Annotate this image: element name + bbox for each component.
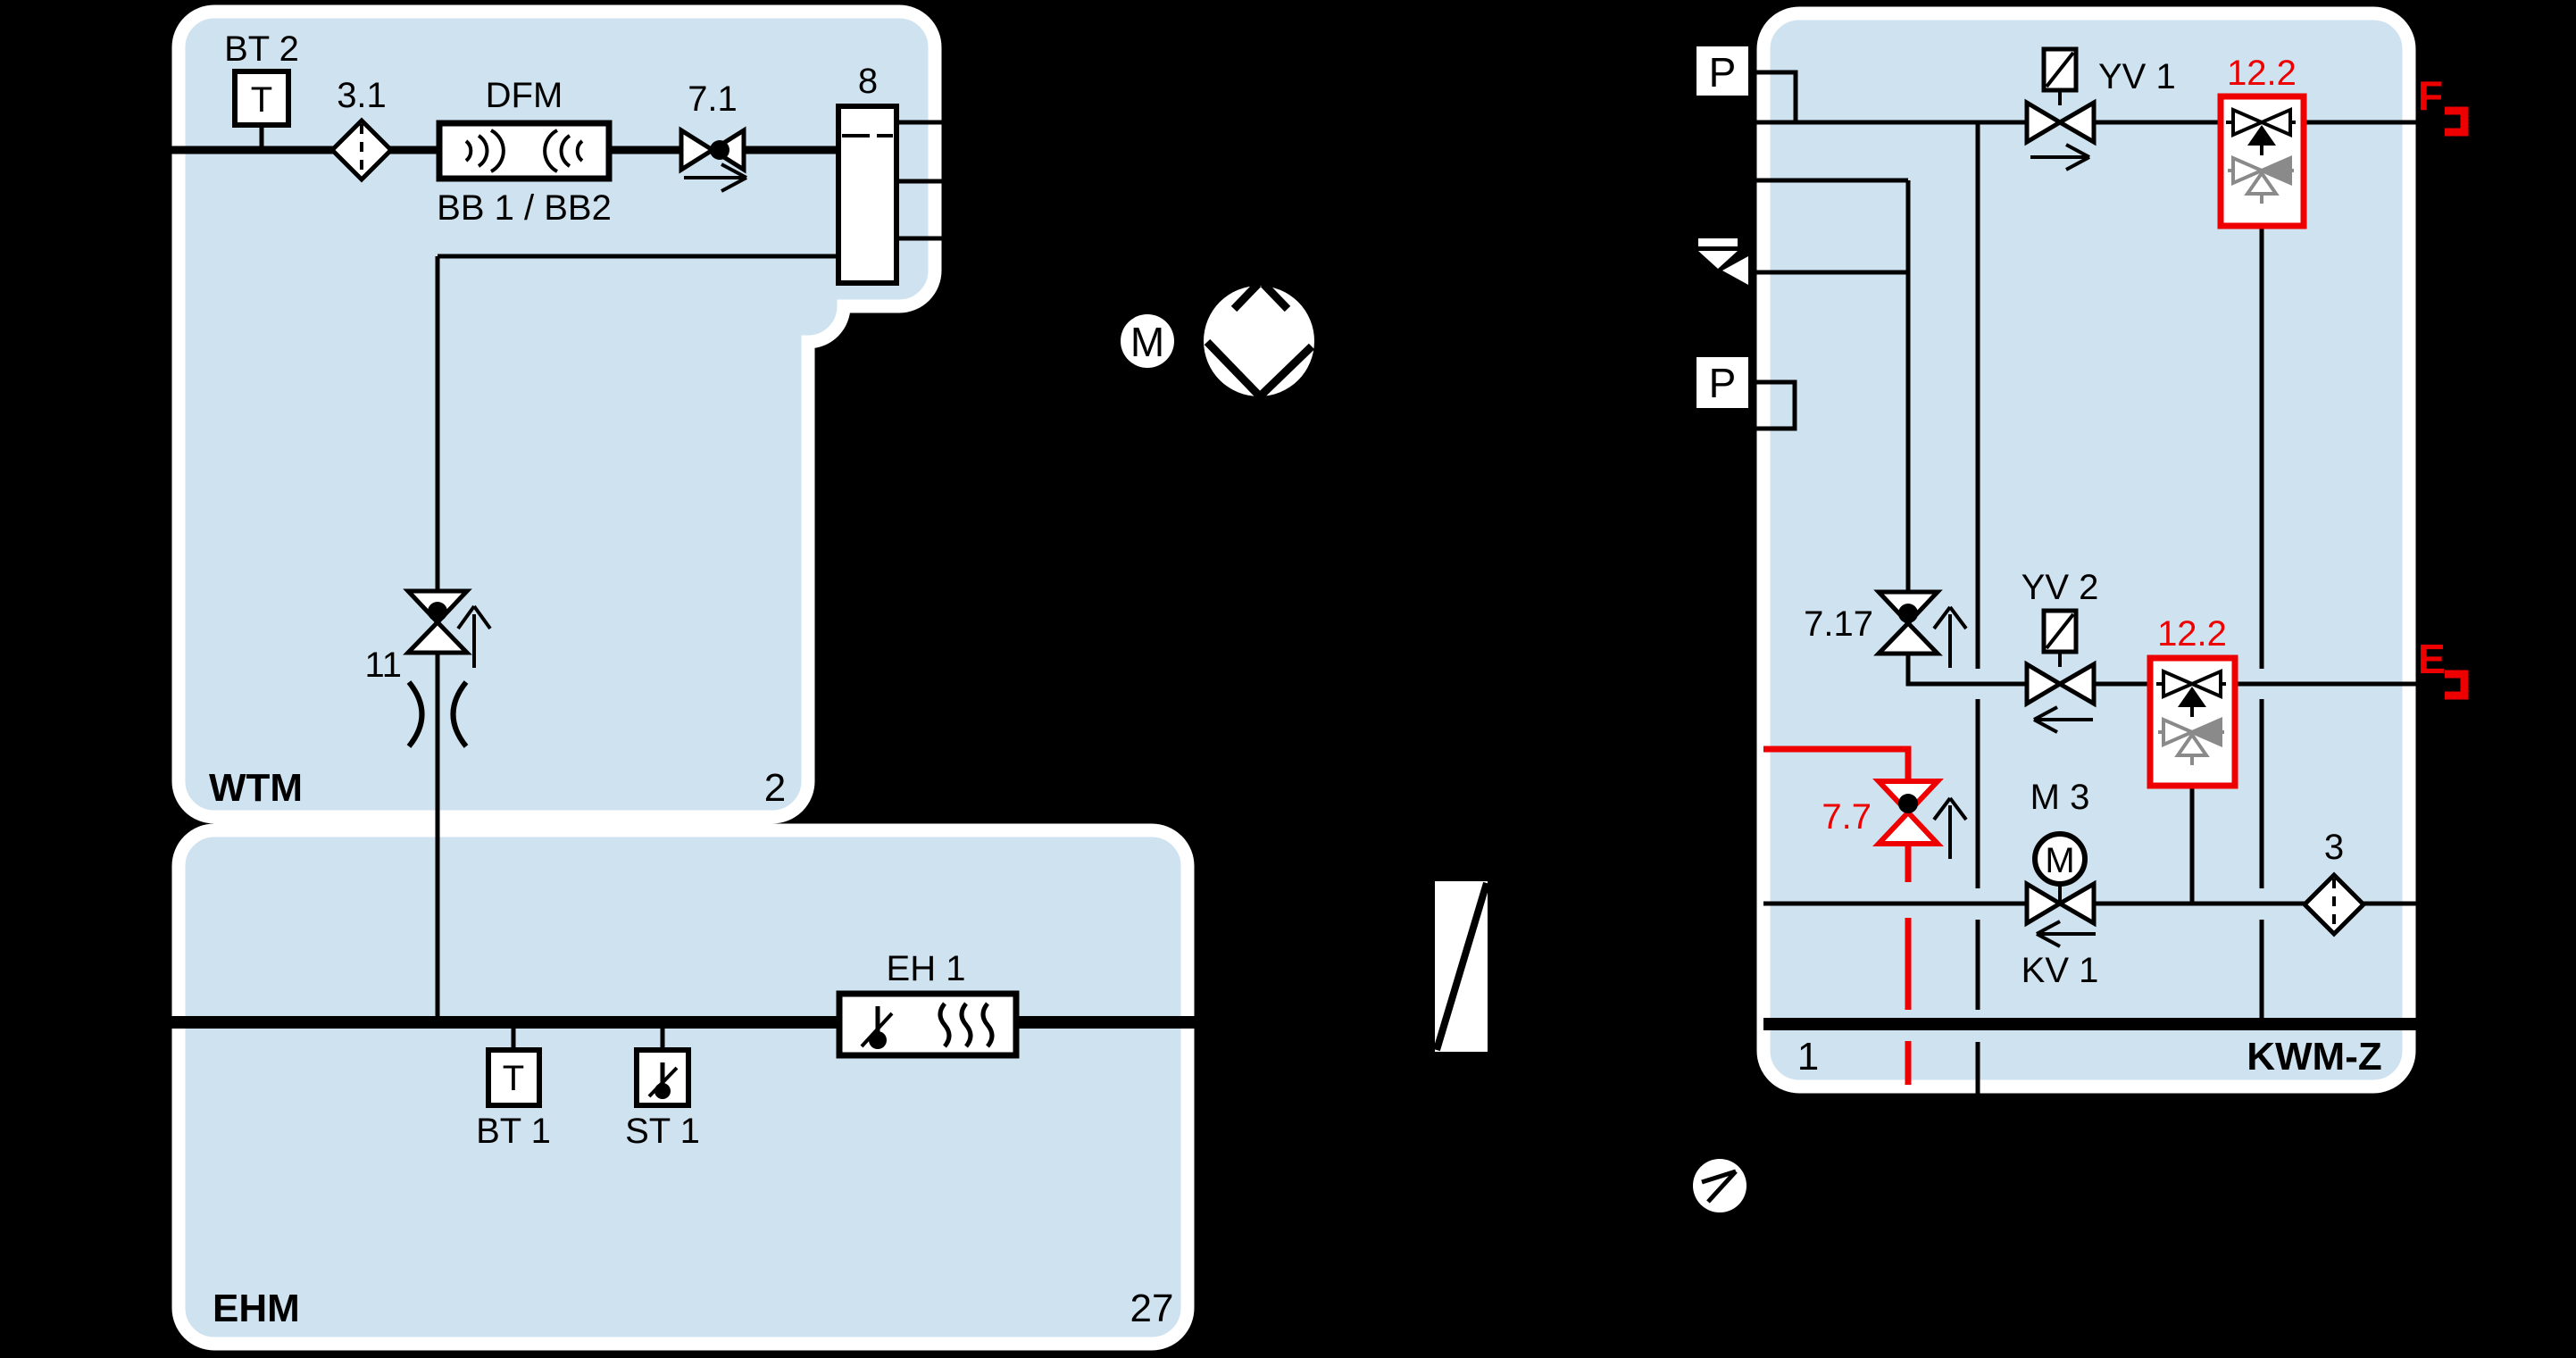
dfm-flow-meter	[439, 123, 609, 179]
m3-glyph: M	[2045, 841, 2074, 880]
vessel-8	[838, 106, 896, 283]
diagram-canvas: BT 2 T 3.1 DFM BB 1 / BB2 7.1 8 11 WTM 2…	[0, 0, 2576, 1358]
wtm-name: WTM	[209, 766, 303, 810]
ehm-name: EHM	[213, 1287, 300, 1330]
red-ref-bracket-top	[2445, 111, 2464, 132]
kv1-label: KV 1	[2022, 951, 2099, 990]
heat-exchanger-symbol	[1435, 881, 1488, 1052]
yv1-label: YV 1	[2098, 57, 2176, 96]
v717-label: 7.17	[1804, 604, 1873, 644]
ehm-number: 27	[1130, 1287, 1174, 1330]
wtm-number: 2	[764, 766, 786, 810]
dfm-sub-label: BB 1 / BB2	[437, 188, 612, 228]
m3-label: M 3	[2030, 778, 2090, 817]
bt1-label: BT 1	[476, 1112, 551, 1151]
filter31-label: 3.1	[337, 76, 387, 115]
ref-e-label: E	[2418, 636, 2446, 682]
yv2-label: YV 2	[2022, 568, 2099, 607]
st1-sensor	[637, 1050, 688, 1105]
drain-funnel-icon	[1698, 238, 1748, 285]
backflow-preventer-top	[2221, 96, 2304, 226]
filter3-label: 3	[2324, 828, 2344, 867]
eh1-heater	[839, 994, 1016, 1055]
ref-f-label: F	[2418, 72, 2443, 119]
kwmz-name: KWM-Z	[2247, 1035, 2382, 1079]
ref122-top-label: 12.2	[2227, 54, 2297, 93]
bt2-glyph: T	[251, 80, 272, 120]
backflow-preventer-mid	[2150, 658, 2235, 786]
ref122-mid-label: 12.2	[2157, 614, 2227, 654]
schematic-svg: BT 2 T 3.1 DFM BB 1 / BB2 7.1 8 11 WTM 2…	[0, 0, 2576, 1358]
eh1-label: EH 1	[887, 949, 966, 988]
vessel8-label: 8	[858, 62, 878, 101]
kwmz-block	[1763, 13, 2409, 1087]
st1-label: ST 1	[625, 1112, 700, 1151]
bt2-label: BT 2	[224, 29, 299, 69]
kwmz-number: 1	[1797, 1035, 1819, 1079]
v71-label: 7.1	[688, 79, 738, 119]
dfm-label: DFM	[486, 76, 563, 115]
pump-symbol	[1204, 284, 1314, 396]
p-mid-glyph: P	[1709, 360, 1737, 406]
p-top-glyph: P	[1709, 49, 1737, 96]
v11-label: 11	[364, 646, 402, 685]
v77-label: 7.7	[1822, 797, 1872, 837]
vent-arrow-circle	[1693, 1159, 1747, 1212]
red-ref-bracket-mid	[2445, 674, 2464, 696]
bt1-glyph: T	[503, 1059, 524, 1098]
motor-glyph: M	[1130, 319, 1164, 365]
